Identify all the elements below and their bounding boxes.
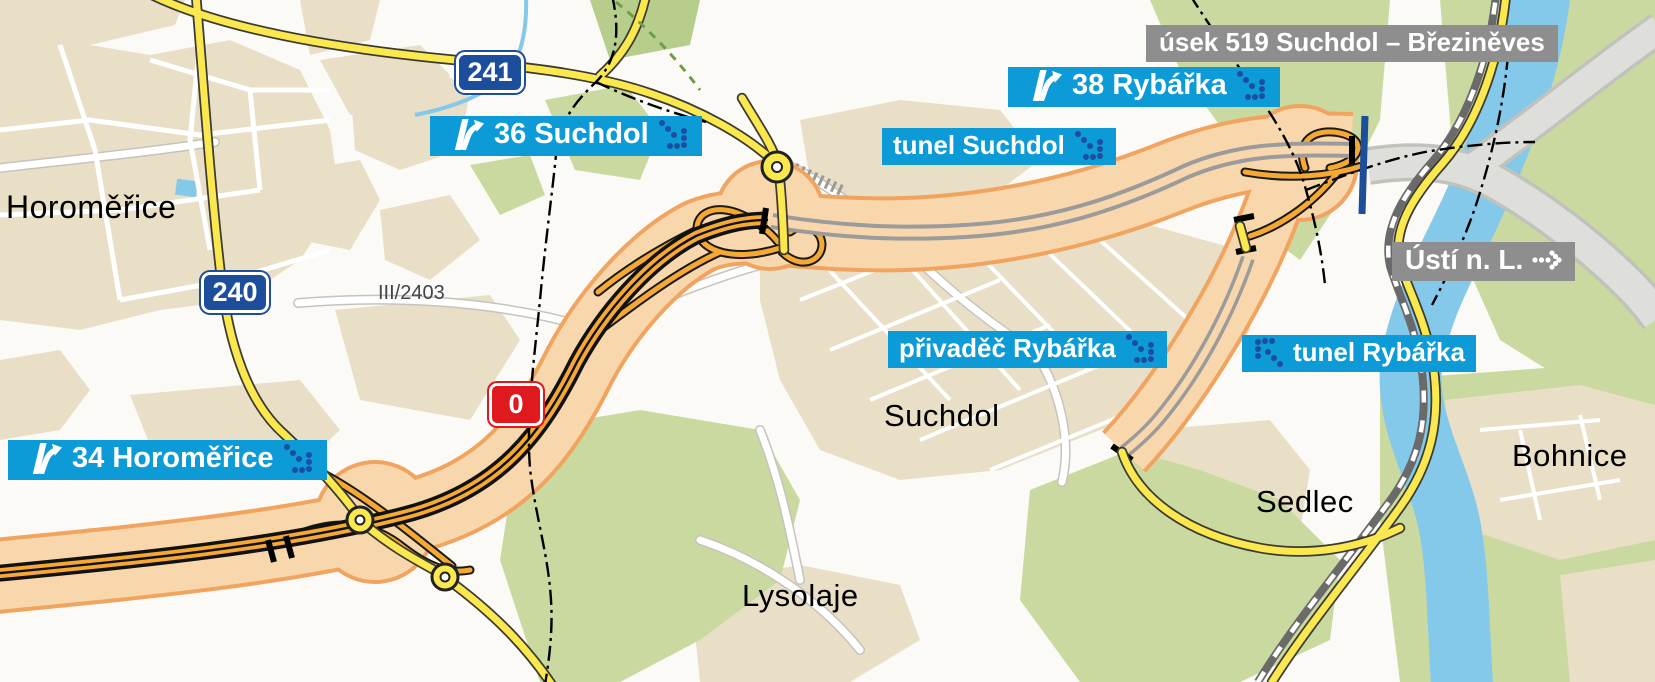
exit-36-text: 36 Suchdol <box>494 119 649 151</box>
dotted-arrow-right-icon <box>1532 249 1562 271</box>
tunel-suchdol-text: tunel Suchdol <box>893 131 1065 160</box>
ring-road-badge-0-text: 0 <box>508 389 523 420</box>
destination-usti-label: Ústí n. L. <box>1392 242 1575 281</box>
ring-road-badge-0: 0 <box>489 383 543 426</box>
place-horomerice: Horoměřice <box>6 189 176 226</box>
motorway-exit-icon <box>1021 70 1063 101</box>
exit-34-label: 34 Horoměřice <box>8 440 327 480</box>
dotted-arrow-down-right-icon <box>1074 131 1105 160</box>
road-badge-240: 240 <box>201 272 269 313</box>
map-viewport: úsek 519 Suchdol – Březiněves 38 Rybářka… <box>0 0 1655 682</box>
place-lysolaje: Lysolaje <box>742 578 859 614</box>
privadec-rybarka-label: přivaděč Rybářka <box>888 331 1167 368</box>
motorway-exit-icon <box>443 119 485 150</box>
road-ref-iii-2403: III/2403 <box>378 282 445 305</box>
exit-34-text: 34 Horoměřice <box>72 443 274 475</box>
privadec-rybarka-text: přivaděč Rybářka <box>899 334 1116 363</box>
place-suchdol: Suchdol <box>884 398 1000 434</box>
section-label: úsek 519 Suchdol – Březiněves <box>1146 25 1558 62</box>
motorway-exit-icon <box>21 443 63 474</box>
dotted-arrow-down-right-icon <box>1125 334 1156 363</box>
dotted-arrow-down-right-icon <box>1236 71 1267 100</box>
dotted-arrow-down-right-icon <box>658 120 689 149</box>
exit-38-label: 38 Rybářka <box>1008 67 1280 107</box>
exit-36-label: 36 Suchdol <box>430 116 702 156</box>
tunel-rybarka-label: tunel Rybářka <box>1242 335 1476 372</box>
road-badge-241-text: 241 <box>467 57 512 88</box>
road-badge-241: 241 <box>456 52 524 93</box>
tunel-rybarka-text: tunel Rybářka <box>1293 338 1465 367</box>
exit-38-text: 38 Rybářka <box>1072 70 1227 102</box>
dotted-arrow-up-left-icon <box>1253 338 1284 367</box>
dotted-arrow-down-right-icon <box>283 444 314 473</box>
destination-usti-text: Ústí n. L. <box>1405 245 1523 276</box>
place-sedlec: Sedlec <box>1256 484 1354 520</box>
pond <box>175 179 198 198</box>
section-divider-line <box>1362 116 1365 214</box>
tunel-suchdol-label: tunel Suchdol <box>882 128 1116 165</box>
place-bohnice: Bohnice <box>1512 438 1628 474</box>
section-label-text: úsek 519 Suchdol – Březiněves <box>1159 28 1545 57</box>
road-badge-240-text: 240 <box>212 277 257 308</box>
